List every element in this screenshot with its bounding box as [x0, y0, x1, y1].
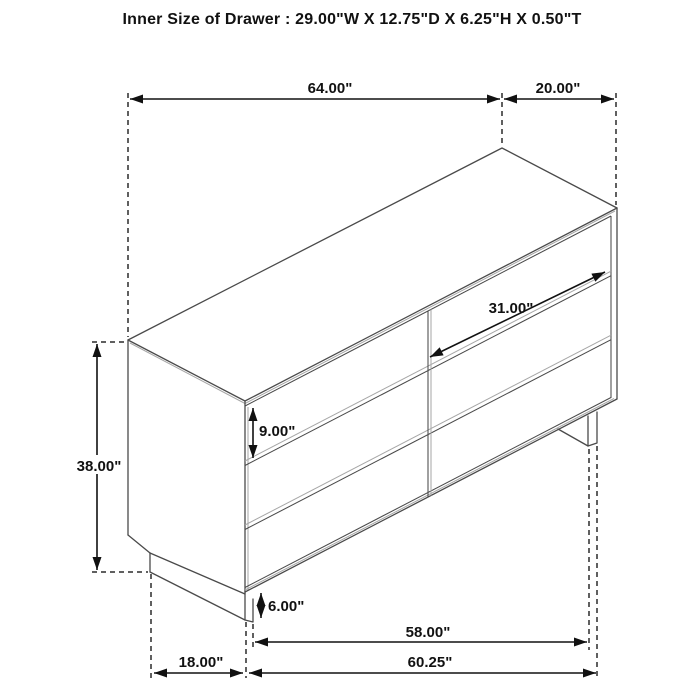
label-leg-height: 6.00"	[268, 598, 304, 615]
label-leg-span-width: 58.00"	[406, 624, 451, 641]
label-overall-height: 38.00"	[77, 458, 122, 475]
dresser-dimension-diagram: Inner Size of Drawer : 29.00"W X 12.75"D…	[0, 0, 700, 700]
dimension-diagram-page: Inner Size of Drawer : 29.00"W X 12.75"D…	[0, 0, 700, 700]
label-overall-width: 64.00"	[308, 80, 353, 97]
canvas-background	[0, 0, 700, 700]
label-drawer-front-width: 31.00"	[489, 300, 534, 317]
label-drawer-front-height: 9.00"	[259, 423, 295, 440]
label-base-width: 60.25"	[408, 654, 453, 671]
label-base-depth: 18.00"	[179, 654, 224, 671]
page-title: Inner Size of Drawer : 29.00"W X 12.75"D…	[122, 11, 581, 28]
label-overall-depth: 20.00"	[536, 80, 581, 97]
